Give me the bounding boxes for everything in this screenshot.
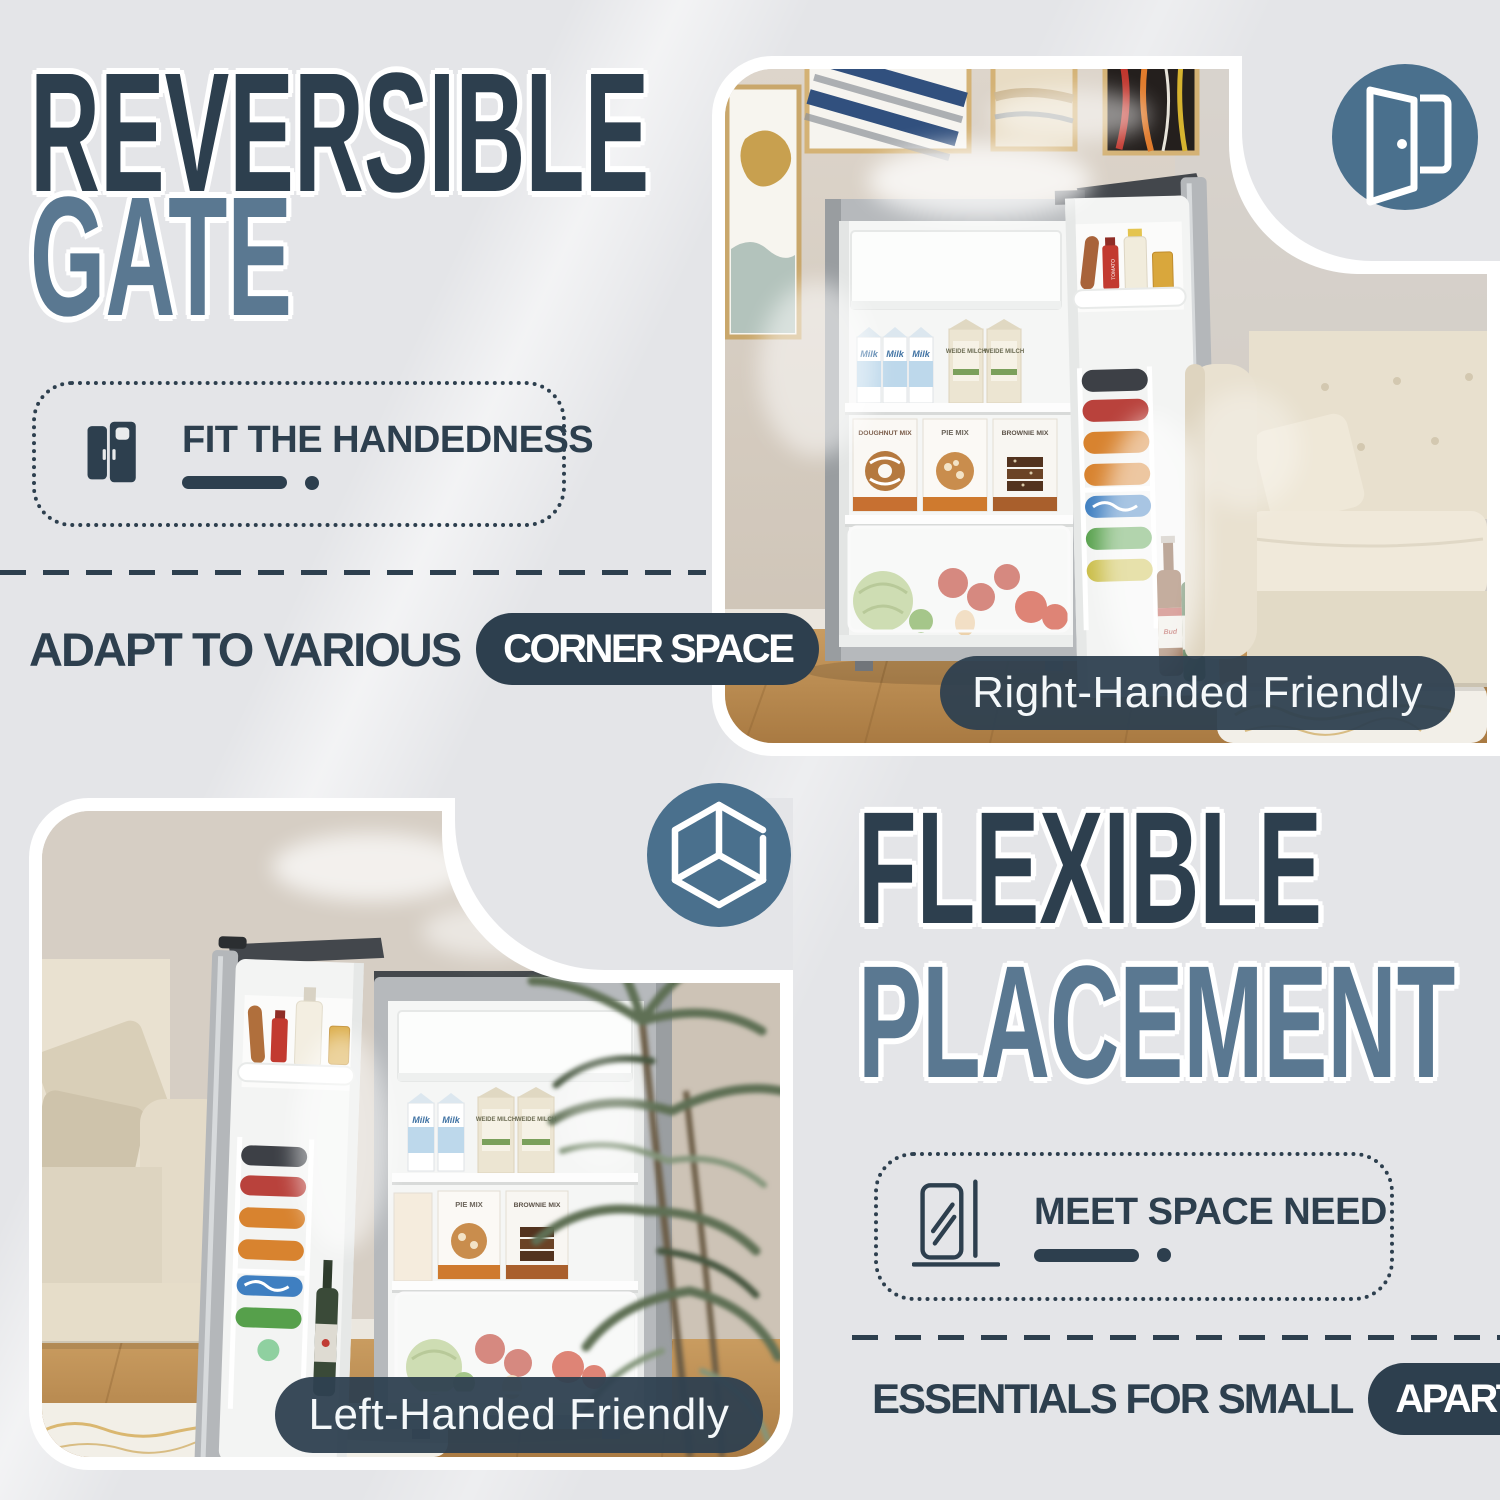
svg-text:TOMATO: TOMATO [1111, 259, 1118, 280]
dashed-divider-left [0, 570, 706, 575]
fit-handedness-feature: FIT THE HANDEDNESS [32, 381, 566, 527]
tagline-prefix: ESSENTIALS FOR SMALL [872, 1375, 1352, 1423]
label-underline [1034, 1248, 1387, 1262]
svg-text:PIE MIX: PIE MIX [941, 428, 969, 437]
open-door-icon [1332, 64, 1478, 210]
dashed-divider-right [852, 1335, 1500, 1340]
corner-space-pill: CORNER SPACE [476, 613, 819, 685]
label-underline [182, 476, 593, 490]
flexible-title-line2: PLACEMENT [858, 942, 1455, 1102]
reversible-title-line2: GATE [30, 172, 292, 342]
svg-text:WEIDE MILCH: WEIDE MILCH [946, 349, 986, 355]
svg-text:Milk: Milk [886, 349, 904, 359]
svg-text:BROWNIE MIX: BROWNIE MIX [1002, 430, 1049, 437]
svg-text:DOUGHNUT MIX: DOUGHNUT MIX [858, 430, 912, 437]
cube-icon [647, 783, 791, 927]
svg-text:Milk: Milk [412, 1115, 430, 1125]
sofa-right [1185, 331, 1487, 691]
door-top-bin: TOMATO [1072, 221, 1186, 312]
meet-space-feature: MEET SPACE NEED [874, 1152, 1394, 1301]
left-handed-caption: Left-Handed Friendly [275, 1377, 763, 1453]
right-handed-caption: Right-Handed Friendly [940, 656, 1455, 730]
svg-text:Milk: Milk [442, 1115, 460, 1125]
svg-text:WEIDE MILCH: WEIDE MILCH [984, 349, 1024, 355]
svg-text:WEIDE MILCH: WEIDE MILCH [476, 1117, 516, 1123]
meet-space-label: MEET SPACE NEED [1034, 1191, 1387, 1234]
crisper-drawer [849, 527, 1069, 636]
svg-text:Milk: Milk [912, 349, 930, 359]
apartments-tagline: ESSENTIALS FOR SMALL APARTMENTS [872, 1363, 1500, 1435]
flexible-title-line1: FLEXIBLE [858, 788, 1322, 948]
tagline-prefix: ADAPT TO VARIOUS [29, 622, 460, 677]
corner-space-tagline: ADAPT TO VARIOUS CORNER SPACE [29, 612, 819, 686]
fridge-beside-wall-icon [912, 1178, 1000, 1275]
fit-handedness-label: FIT THE HANDEDNESS [182, 419, 593, 462]
baking-mix-boxes: DOUGHNUT MIX PIE MIX [853, 419, 1057, 511]
double-fridge-door-icon [76, 404, 148, 505]
svg-text:BROWNIE MIX: BROWNIE MIX [514, 1202, 561, 1209]
product-infographic: REVERSIBLE GATE FIT THE HANDEDNESS ADAPT… [0, 0, 1500, 1500]
svg-text:PIE MIX: PIE MIX [455, 1200, 483, 1209]
apartments-pill: APARTMENTS [1368, 1363, 1500, 1435]
